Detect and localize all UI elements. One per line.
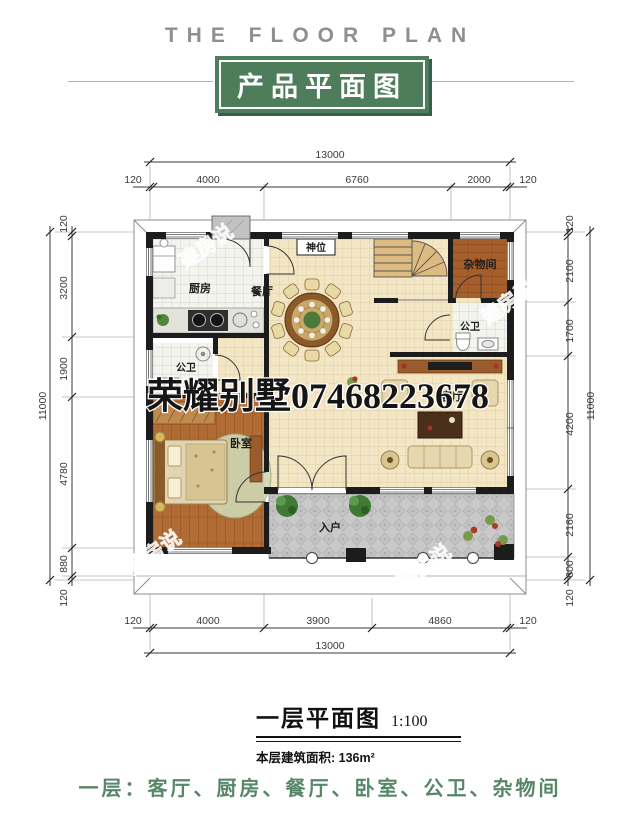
dim-bottom-seg-4: 120 <box>519 615 537 627</box>
shrine-label: 神位 <box>306 241 326 254</box>
caption-block: 一层平面图1:100 本层建筑面积: 136m² <box>256 699 466 766</box>
dim-top-seg-3: 2000 <box>467 174 491 186</box>
dim-top-total: 13000 <box>315 149 344 161</box>
dim-left-seg-2: 1900 <box>58 357 70 381</box>
caption-underline <box>256 736 461 742</box>
header-title-en: THE FLOOR PLAN <box>0 24 640 48</box>
window <box>432 488 476 494</box>
dim-left-total: 11000 <box>37 392 49 421</box>
header-title-box: 产品平面图 <box>215 56 429 113</box>
window <box>352 233 408 239</box>
shrine-box: 神位 <box>297 239 335 255</box>
dim-right-seg-6: 120 <box>564 589 576 607</box>
bedroom-label: 卧室 <box>230 436 252 450</box>
dim-bottom-seg-3: 4860 <box>428 615 452 627</box>
entrance-label: 入户 <box>319 520 341 534</box>
pillow <box>168 446 181 466</box>
caption-title: 一层平面图 <box>256 705 381 731</box>
dining-label: 餐厅 <box>250 284 273 298</box>
window <box>282 233 338 239</box>
window <box>460 233 500 239</box>
dim-top-seg-2: 6760 <box>345 174 369 186</box>
storage-label: 杂物间 <box>464 257 497 271</box>
dim-bottom-seg-0: 120 <box>124 615 142 627</box>
table-centerpiece <box>304 312 321 329</box>
footer-room-summary: 一层：客厅、厨房、餐厅、卧室、公卫、杂物间 <box>0 772 640 801</box>
window <box>147 248 153 276</box>
dim-bottom-seg-1: 4000 <box>196 615 220 627</box>
dim-bottom-total: 13000 <box>315 640 344 652</box>
floor-plan-drawing: 13000 120 4000 6760 2000 120 120 4000 39… <box>0 140 640 700</box>
header-divider-right <box>427 81 574 82</box>
fridge <box>153 246 175 272</box>
dim-top-seg-1: 4000 <box>196 174 220 186</box>
window <box>508 242 514 280</box>
dim-left-seg-1: 3200 <box>58 276 70 300</box>
dim-left-seg-3: 4780 <box>58 462 70 486</box>
dim-right-seg-1: 2100 <box>564 259 576 283</box>
column-symbol <box>468 553 479 564</box>
header-divider-left <box>68 81 213 82</box>
dim-left-seg-5: 120 <box>58 589 70 607</box>
window <box>508 380 514 476</box>
pillow <box>168 478 181 498</box>
bath-left-label: 公卫 <box>176 362 196 374</box>
window <box>147 440 153 502</box>
dim-top-seg-0: 120 <box>124 174 142 186</box>
header-title-cn: 产品平面图 <box>219 60 425 109</box>
window <box>380 488 424 494</box>
porch-floor <box>269 494 514 558</box>
dim-right-seg-2: 1700 <box>564 319 576 343</box>
dim-bottom-seg-2: 3900 <box>306 615 330 627</box>
page: THE FLOOR PLAN 产品平面图 <box>0 0 640 832</box>
caption-area-text: 本层建筑面积: 136m² <box>256 747 466 766</box>
dim-right-seg-5: 600 <box>564 560 576 578</box>
dim-right-total: 11000 <box>585 392 597 421</box>
kitchen-sink <box>233 313 247 327</box>
bath-right-label: 公卫 <box>460 321 480 333</box>
dim-right-seg-0: 120 <box>564 215 576 233</box>
dim-top-seg-4: 120 <box>519 174 537 186</box>
dim-right-seg-3: 4200 <box>564 412 576 436</box>
kitchen-label: 厨房 <box>189 281 211 295</box>
dim-right-seg-4: 2160 <box>564 513 576 537</box>
dim-left-seg-0: 120 <box>58 215 70 233</box>
center-watermark: 荣耀别墅07468223678 <box>147 376 489 416</box>
column-symbol <box>307 553 318 564</box>
tv <box>428 362 472 370</box>
caption-scale: 1:100 <box>391 713 427 730</box>
dim-left-seg-4: 880 <box>58 555 70 573</box>
